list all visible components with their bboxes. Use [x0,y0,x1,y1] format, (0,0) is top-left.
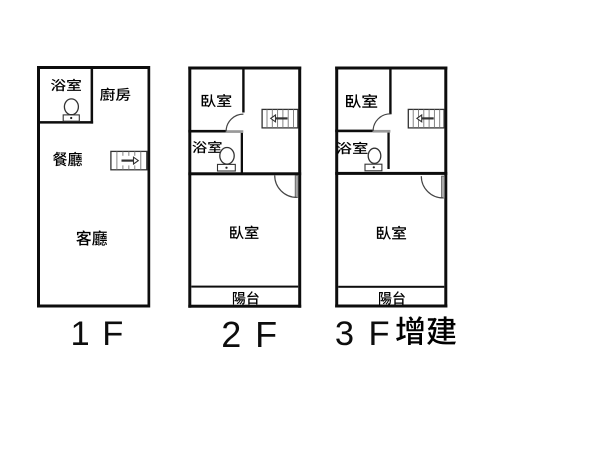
svg-text:2: 2 [221,314,241,355]
svg-text:F: F [102,315,123,353]
svg-text:F: F [369,315,390,353]
svg-text:F: F [255,314,277,355]
svg-text:3: 3 [335,315,354,353]
svg-text:1: 1 [71,315,90,353]
